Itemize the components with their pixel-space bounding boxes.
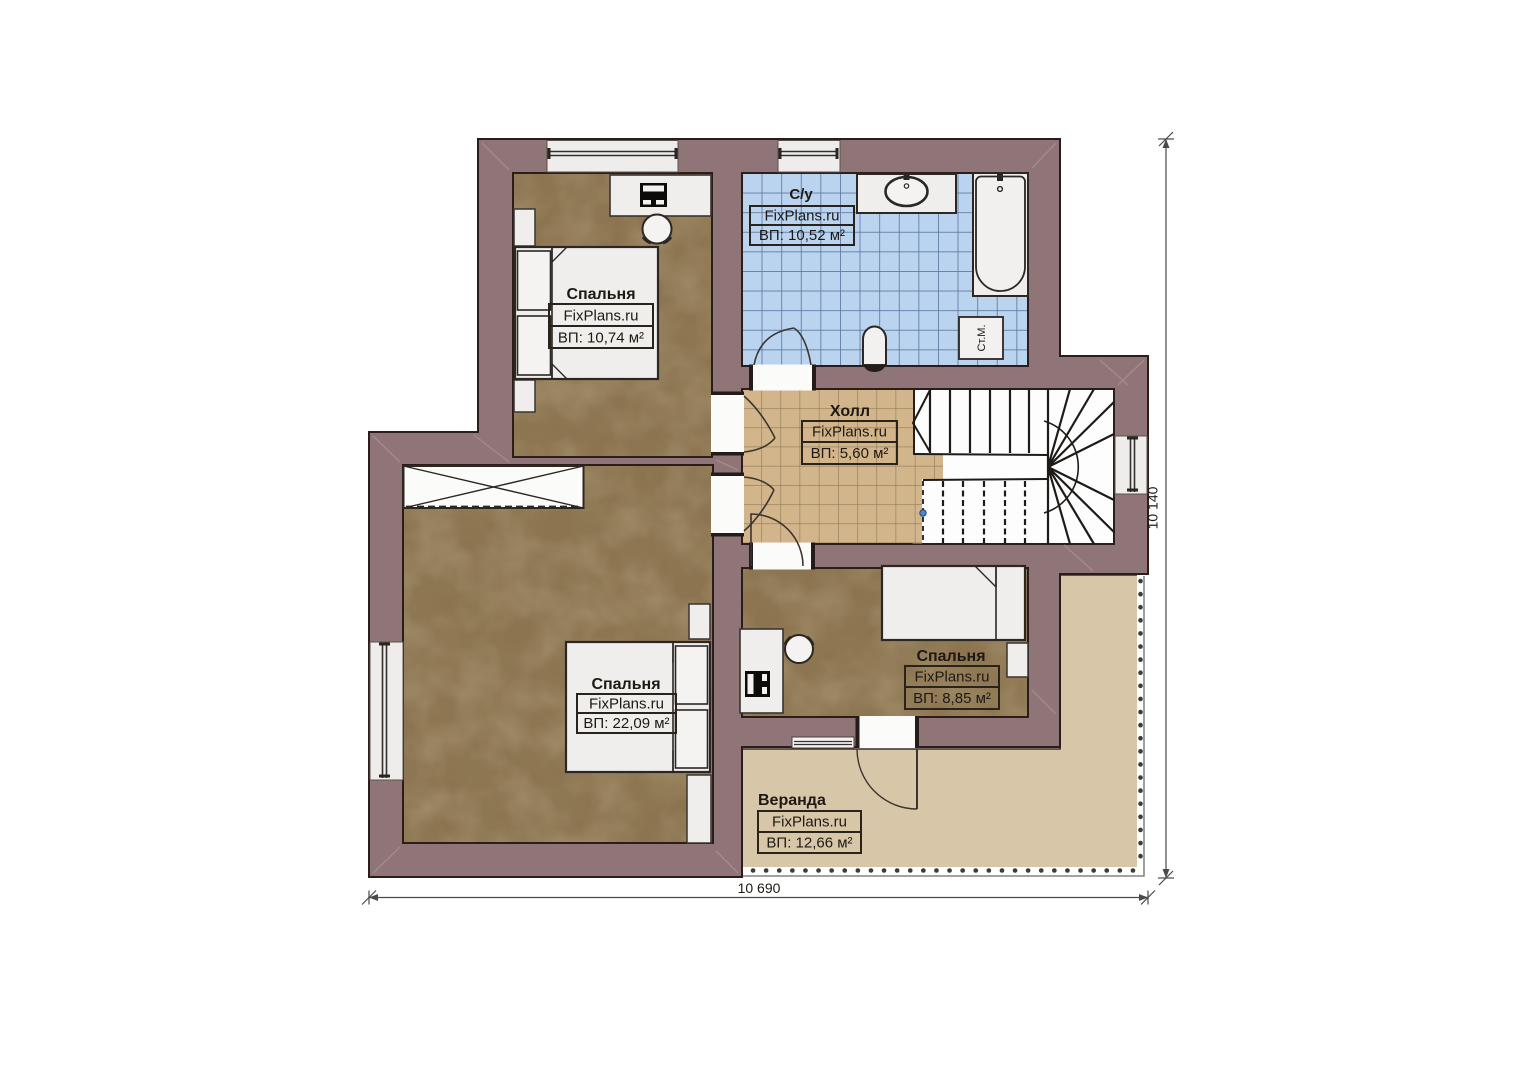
- svg-text:ВП: 12,66 м²: ВП: 12,66 м²: [766, 835, 852, 852]
- svg-text:Спальня: Спальня: [566, 286, 635, 303]
- svg-text:FixPlans.ru: FixPlans.ru: [563, 308, 638, 325]
- svg-text:FixPlans.ru: FixPlans.ru: [914, 669, 989, 686]
- svg-text:Веранда: Веранда: [758, 792, 826, 809]
- svg-text:С/у: С/у: [789, 186, 813, 203]
- svg-text:FixPlans.ru: FixPlans.ru: [589, 696, 664, 713]
- svg-text:Холл: Холл: [830, 403, 870, 420]
- svg-text:FixPlans.ru: FixPlans.ru: [772, 814, 847, 831]
- svg-text:10 140: 10 140: [1145, 486, 1161, 529]
- svg-text:ВП: 8,85 м²: ВП: 8,85 м²: [913, 690, 991, 707]
- svg-text:ВП: 5,60 м²: ВП: 5,60 м²: [811, 445, 889, 462]
- svg-text:FixPlans.ru: FixPlans.ru: [812, 424, 887, 441]
- svg-text:ВП: 10,52 м²: ВП: 10,52 м²: [759, 227, 845, 244]
- svg-text:FixPlans.ru: FixPlans.ru: [764, 208, 839, 225]
- svg-text:Спальня: Спальня: [916, 648, 985, 665]
- svg-text:Спальня: Спальня: [591, 676, 660, 693]
- svg-text:ВП: 10,74 м²: ВП: 10,74 м²: [558, 330, 644, 347]
- svg-text:Ст.М.: Ст.М.: [976, 324, 988, 351]
- svg-text:10 690: 10 690: [738, 880, 781, 896]
- svg-text:ВП: 22,09 м²: ВП: 22,09 м²: [583, 715, 669, 732]
